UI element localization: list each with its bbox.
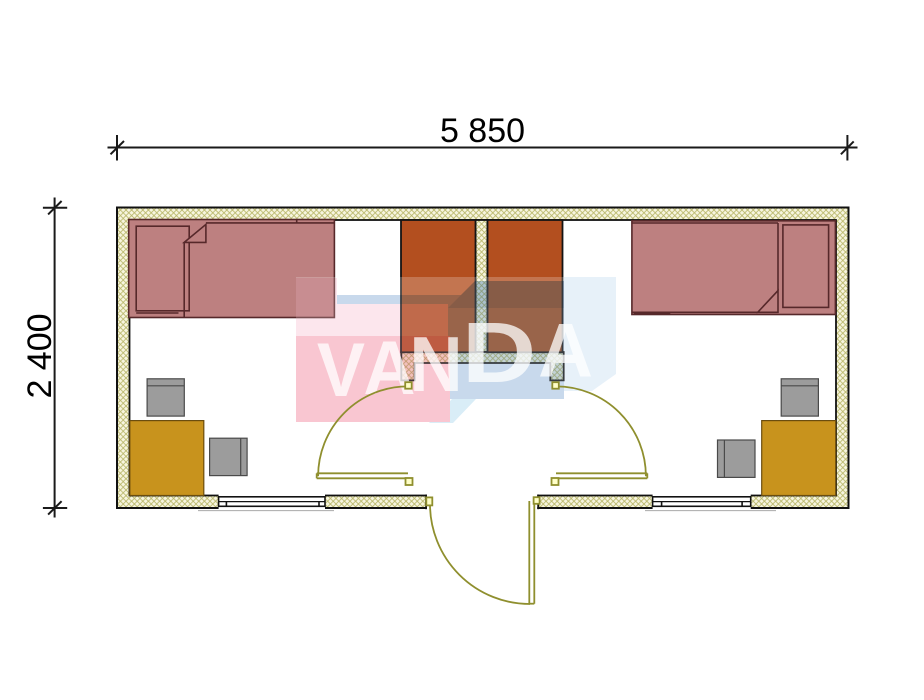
- svg-text:5 850: 5 850: [440, 112, 525, 150]
- svg-text:V: V: [317, 327, 365, 412]
- svg-text:A: A: [363, 325, 415, 410]
- svg-text:2 400: 2 400: [21, 313, 59, 398]
- svg-text:D: D: [462, 305, 536, 400]
- svg-text:A: A: [538, 309, 593, 394]
- svg-text:N: N: [409, 321, 463, 408]
